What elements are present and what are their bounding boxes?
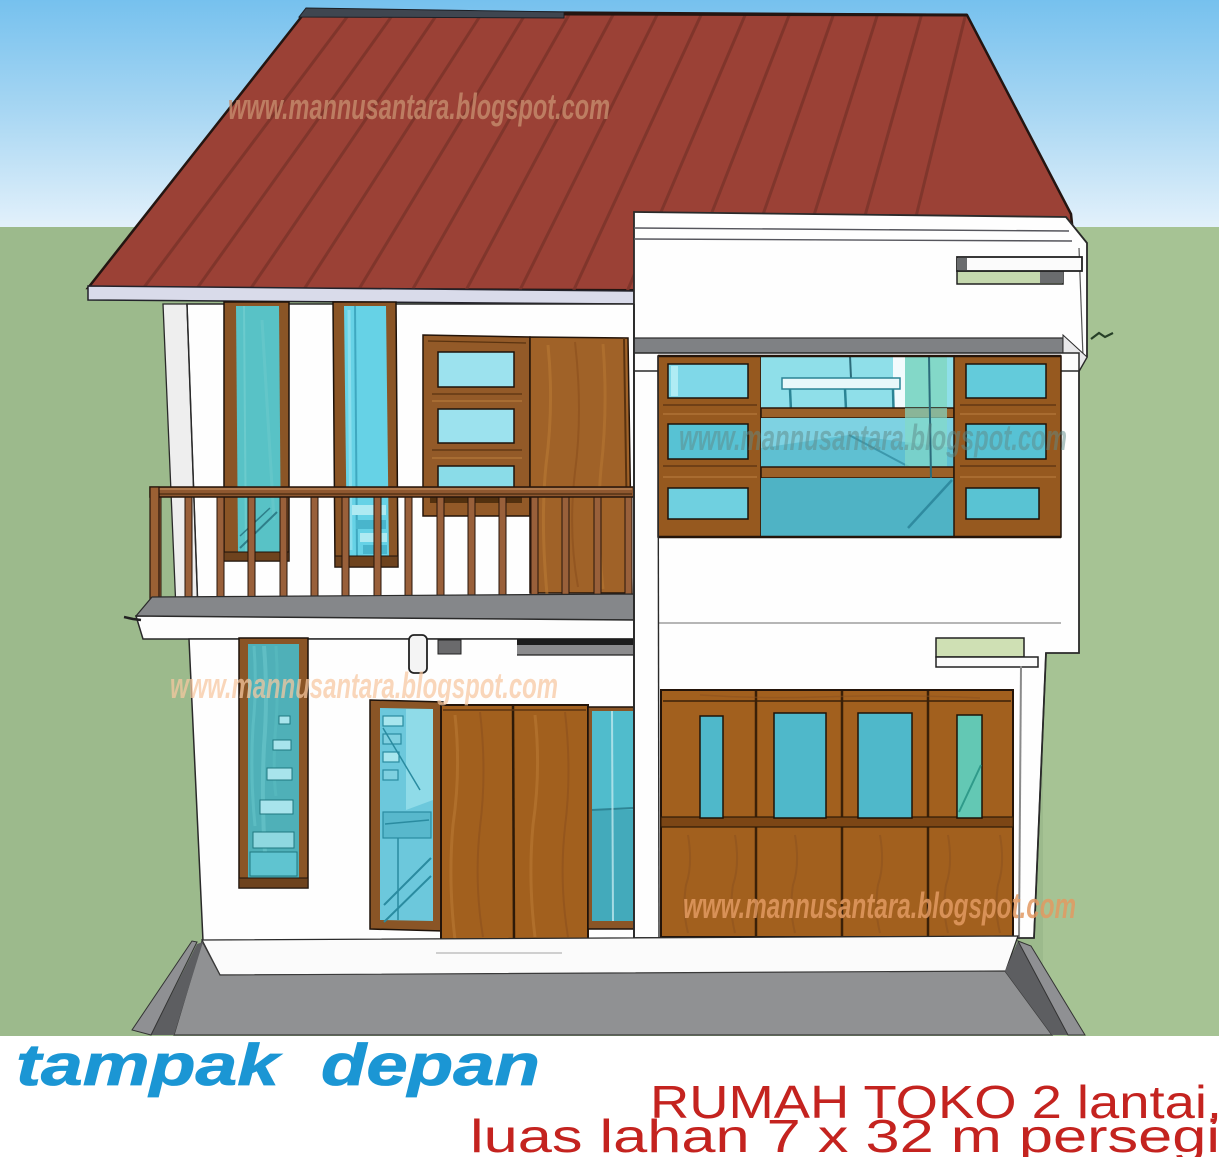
svg-text:www.mannusantara.blogspot.com: www.mannusantara.blogspot.com — [679, 417, 1067, 458]
svg-text:www.mannusantara.blogspot.com: www.mannusantara.blogspot.com — [170, 665, 558, 706]
svg-text:www.mannusantara.blogspot.com: www.mannusantara.blogspot.com — [228, 86, 610, 127]
svg-text:tampak: tampak — [16, 1033, 283, 1098]
svg-text:depan: depan — [321, 1033, 540, 1098]
svg-text:www.mannusantara.blogspot.com: www.mannusantara.blogspot.com — [683, 885, 1076, 926]
svg-text:luas lahan 7 x 32 m persegi: luas lahan 7 x 32 m persegi — [470, 1110, 1219, 1157]
